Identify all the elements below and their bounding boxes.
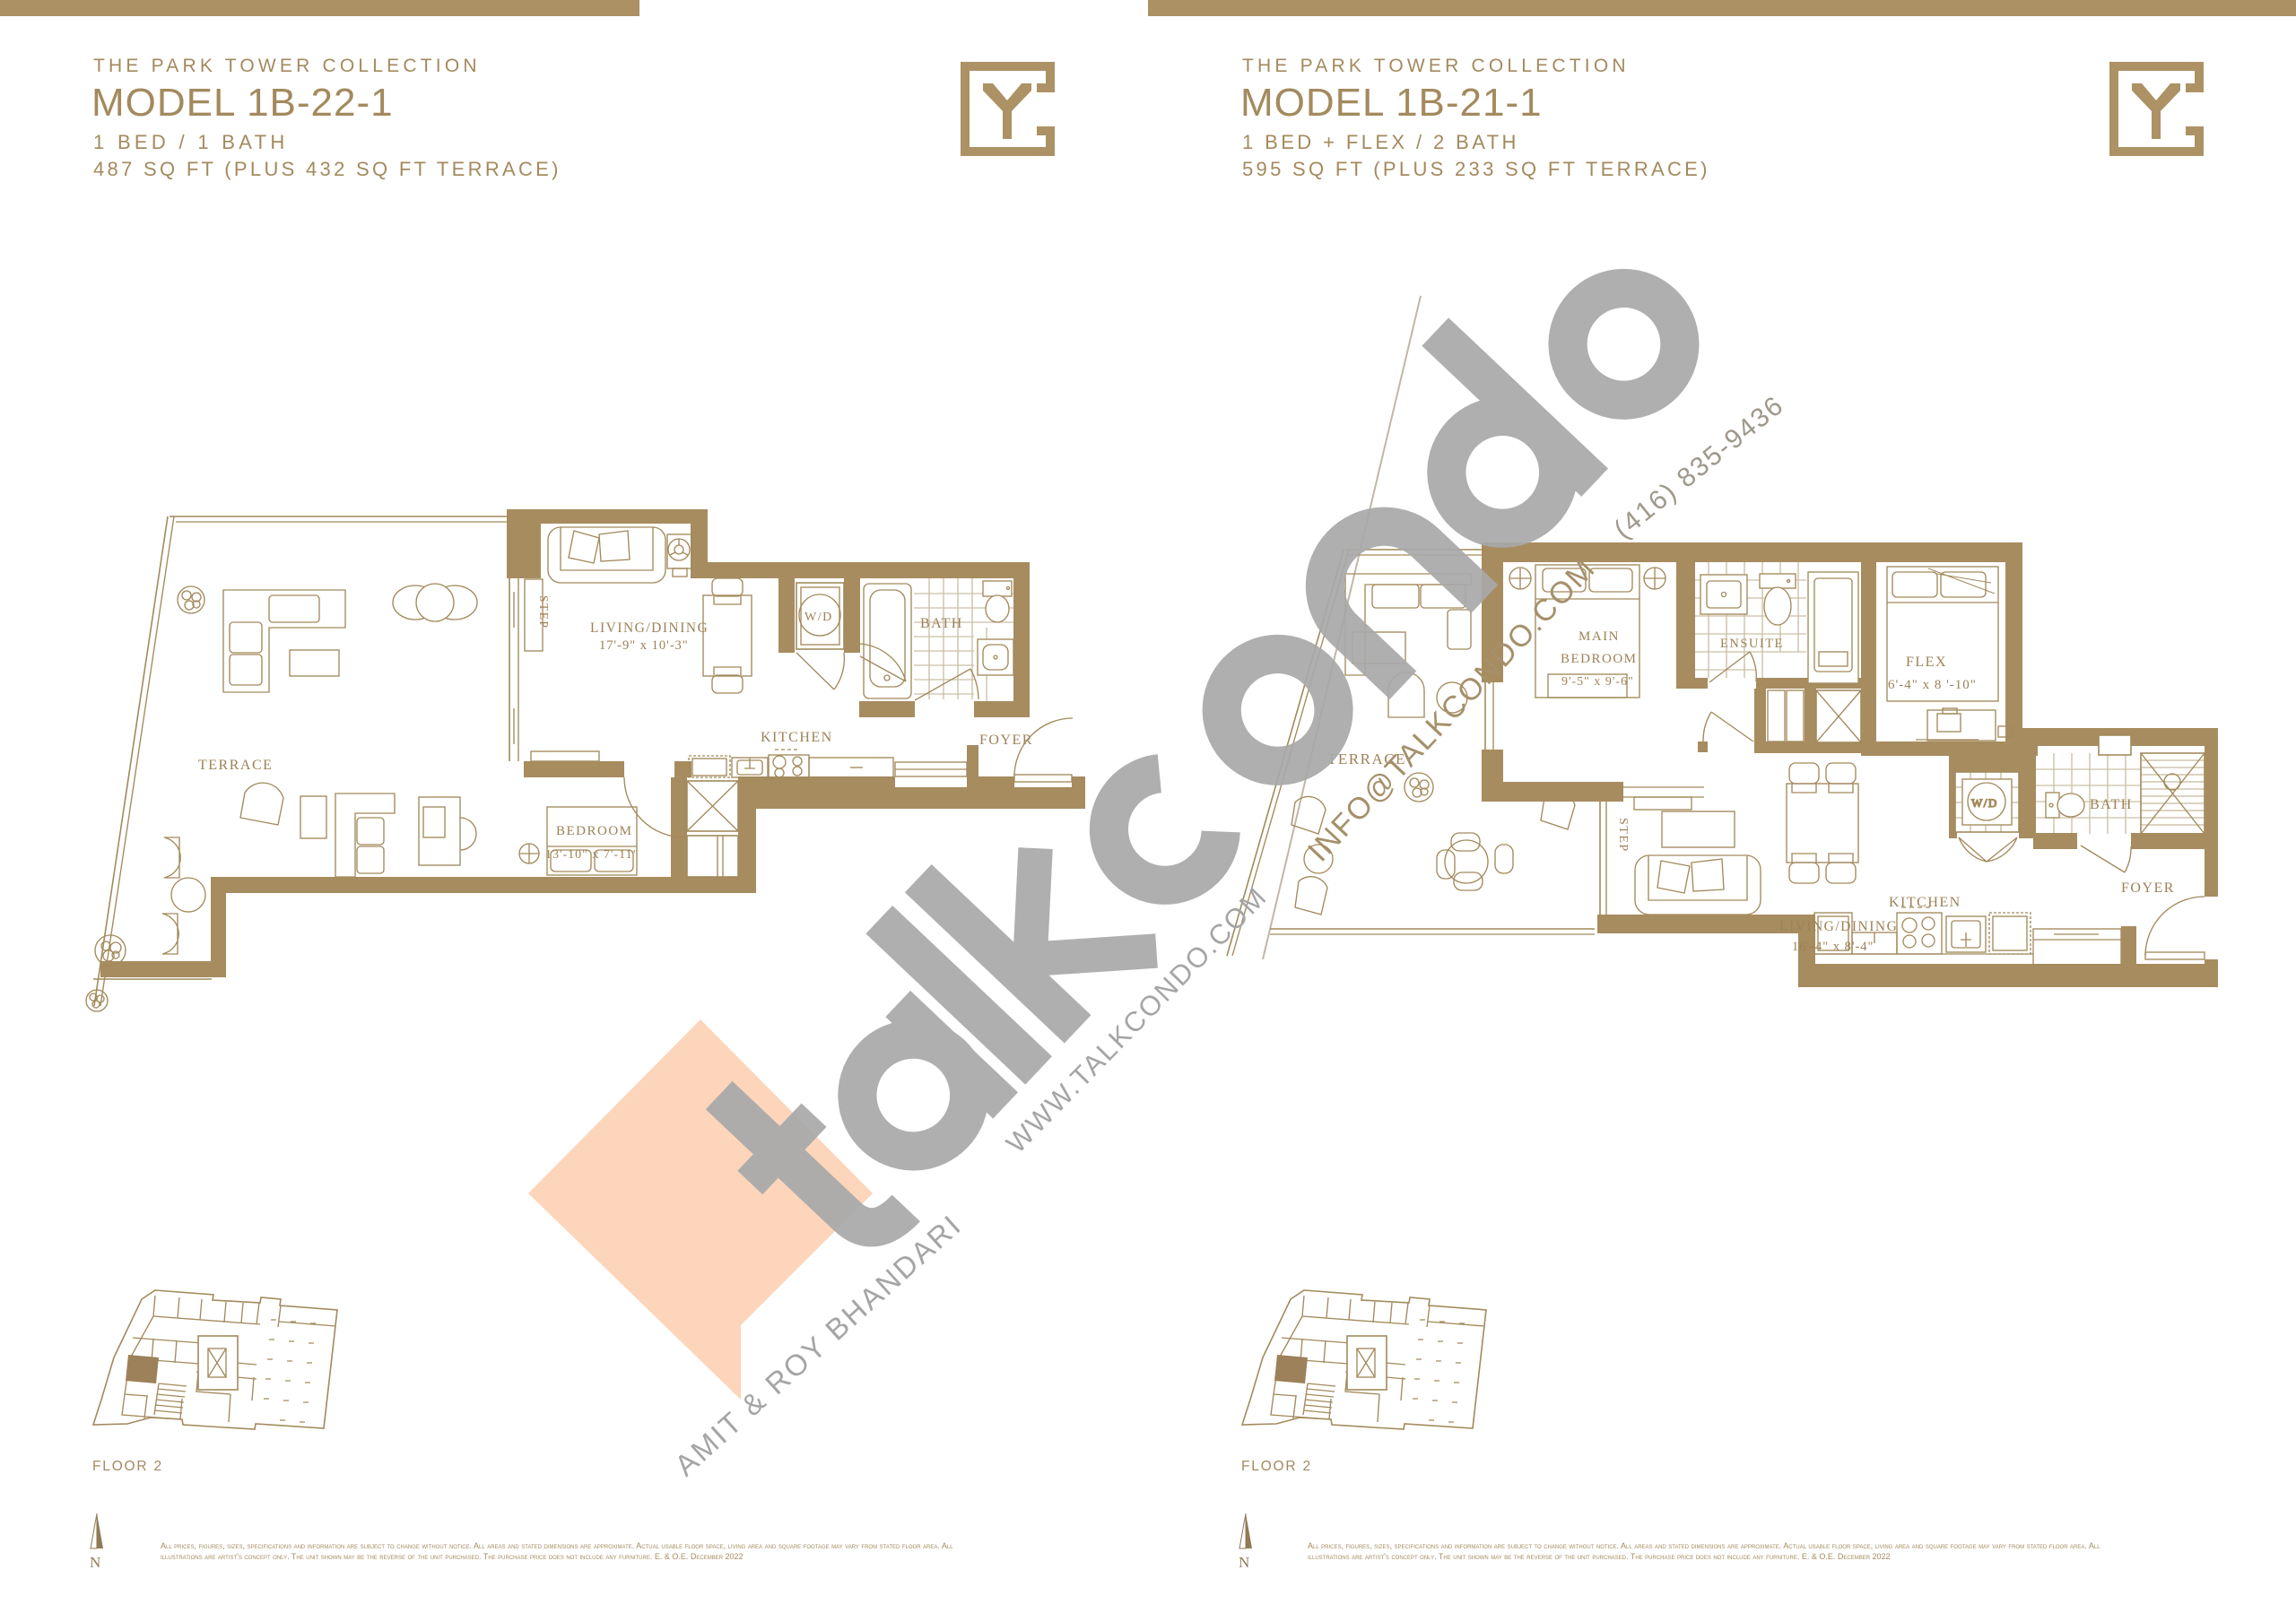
svg-text:AMIT & ROY BHANDARI: AMIT & ROY BHANDARI bbox=[668, 1208, 968, 1482]
